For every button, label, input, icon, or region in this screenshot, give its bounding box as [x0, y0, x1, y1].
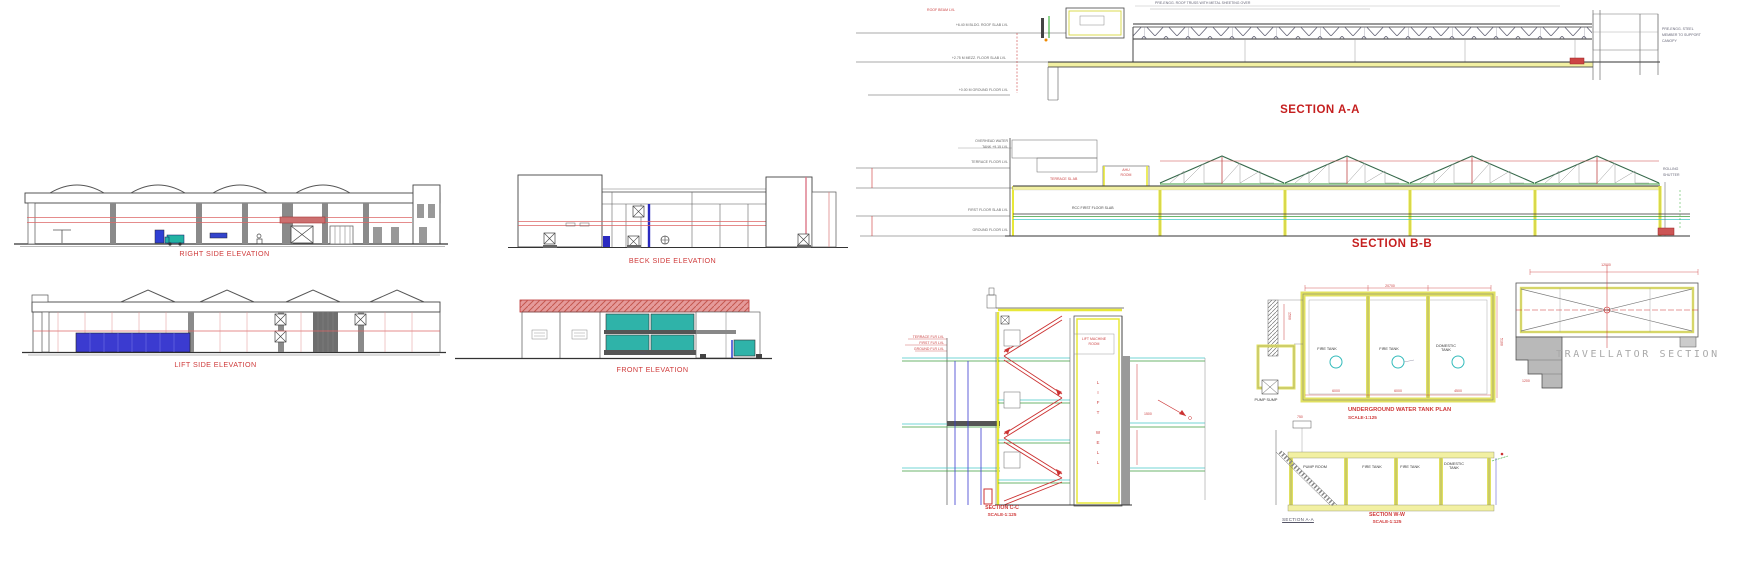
annotation-text: +0.00 M GROUND FLOOR LVL [959, 89, 1008, 93]
annotation-text: PRE-ENGG. ROOF TRUSS WITH METAL SHEETING… [1155, 2, 1250, 6]
annotation-text: GROUND FLR LVL [914, 348, 944, 352]
front-elevation-drawing [455, 300, 772, 359]
annotation-text: FIRST FLR LVL [919, 342, 944, 346]
annotation-text: ROOF BEAM LVL [927, 9, 955, 13]
annotation-text: TERRACE SL AB [1050, 178, 1077, 182]
annotation-text: TANK +9.15 LVL [982, 146, 1008, 150]
right-side-elevation-drawing [14, 185, 448, 247]
annotation-text: 1500 [1287, 312, 1291, 320]
label-section-ww: SECTION W-W [1342, 512, 1432, 519]
annotation-text: 6000 [1332, 390, 1340, 394]
annotation-text: PRE-ENGG. STEEL [1662, 28, 1694, 32]
label-ww-domestic-tank: DOMESTIC TANK [1440, 462, 1468, 471]
annotation-text: +6.40 M BLDG. ROOF SLAB LVL [956, 24, 1008, 28]
label-section-aa: SECTION A-A [1240, 104, 1400, 116]
annotation-text: 12000 [1601, 264, 1611, 268]
annotation-text: WAL [640, 352, 647, 356]
cad-linework [0, 0, 1756, 588]
annotation-text: FIRST FLOOR SLAB LVL [968, 209, 1008, 213]
section-aa-drawing [856, 6, 1660, 100]
annotation-text: ROOM [1089, 343, 1100, 347]
label-right-side-elevation: RIGHT SIDE ELEVATION [147, 249, 302, 258]
underground-water-tank-plan-drawing [1258, 285, 1497, 400]
annotation-text: +2.75 M MEZZ. FLOOR SLAB LVL [952, 57, 1006, 61]
travellator-section-drawing [1516, 265, 1698, 388]
lift-side-elevation-drawing [22, 290, 446, 355]
label-section-ww-scale: SCALE-1:125 [1342, 519, 1432, 525]
annotation-text: 1200 [1522, 380, 1530, 384]
label-plan-domestic-tank: DOMESTIC TANK [1432, 344, 1460, 353]
label-ww-fire-tank-2: FIRE TANK [1397, 465, 1423, 469]
label-section-cc-scale: SCALE-1:125 [962, 512, 1042, 518]
drawing-sheet: RIGHT SIDE ELEVATION BECK SIDE ELEVATION… [0, 0, 1756, 588]
annotation-text: GROUND FLOOR LVL [972, 229, 1008, 233]
label-beck-side-elevation: BECK SIDE ELEVATION [595, 256, 750, 265]
label-section-bb: SECTION B-B [1312, 238, 1472, 250]
section-bb-drawing [856, 138, 1690, 236]
label-section-ww-sub: SECTION A-A [1266, 517, 1330, 522]
annotation-text: LIFT MACHINE [1082, 338, 1106, 342]
annotation-text: CANOPY [1662, 40, 1677, 44]
label-lift-well: L I F T W E L L [1090, 378, 1106, 468]
annotation-text: 4500 [1454, 390, 1462, 394]
annotation-text: RCC FIRST FLOOR SLAB [1072, 207, 1114, 211]
label-uwt-plan: UNDERGROUND WATER TANK PLAN [1348, 407, 1518, 414]
annotation-text: 750 [1297, 416, 1303, 420]
annotation-text: AHU [1122, 169, 1129, 173]
annotation-text: 20700 [1385, 285, 1395, 289]
annotation-text: 1500 [1144, 413, 1152, 417]
annotation-text: ROOM [1121, 174, 1132, 178]
label-lift-side-elevation: LIFT SIDE ELEVATION [138, 360, 293, 369]
stair-section-drawing [902, 288, 1205, 506]
label-plan-fire-tank-2: FIRE TANK [1376, 347, 1402, 351]
annotation-text: MEMBER TO SUPPORT [1662, 34, 1701, 38]
label-plan-pump-sump: PUMP SUMP [1254, 398, 1278, 402]
annotation-text: ROLLING [1663, 168, 1678, 172]
label-uwt-plan-scale: SCALE-1:125 [1348, 415, 1518, 421]
label-front-elevation: FRONT ELEVATION [575, 365, 730, 374]
label-plan-fire-tank-1: FIRE TANK [1314, 347, 1340, 351]
label-section-cc: SECTION C-C [962, 505, 1042, 512]
annotation-text: TERRACE FLOOR LVL [971, 161, 1008, 165]
label-ww-pump-room: PUMP ROOM [1298, 465, 1332, 469]
annotation-text: 5100 [1499, 338, 1503, 346]
annotation-text: SHUTTER [1663, 174, 1680, 178]
beck-side-elevation-drawing [508, 175, 848, 248]
label-ww-fire-tank-1: FIRE TANK [1359, 465, 1385, 469]
annotation-text: 6000 [1394, 390, 1402, 394]
annotation-text: TERRACE FLR LVL [913, 336, 944, 340]
label-travellator-section: TRAVELLATOR SECTION [1556, 349, 1720, 360]
annotation-text: OVERHEAD WATER [975, 140, 1008, 144]
